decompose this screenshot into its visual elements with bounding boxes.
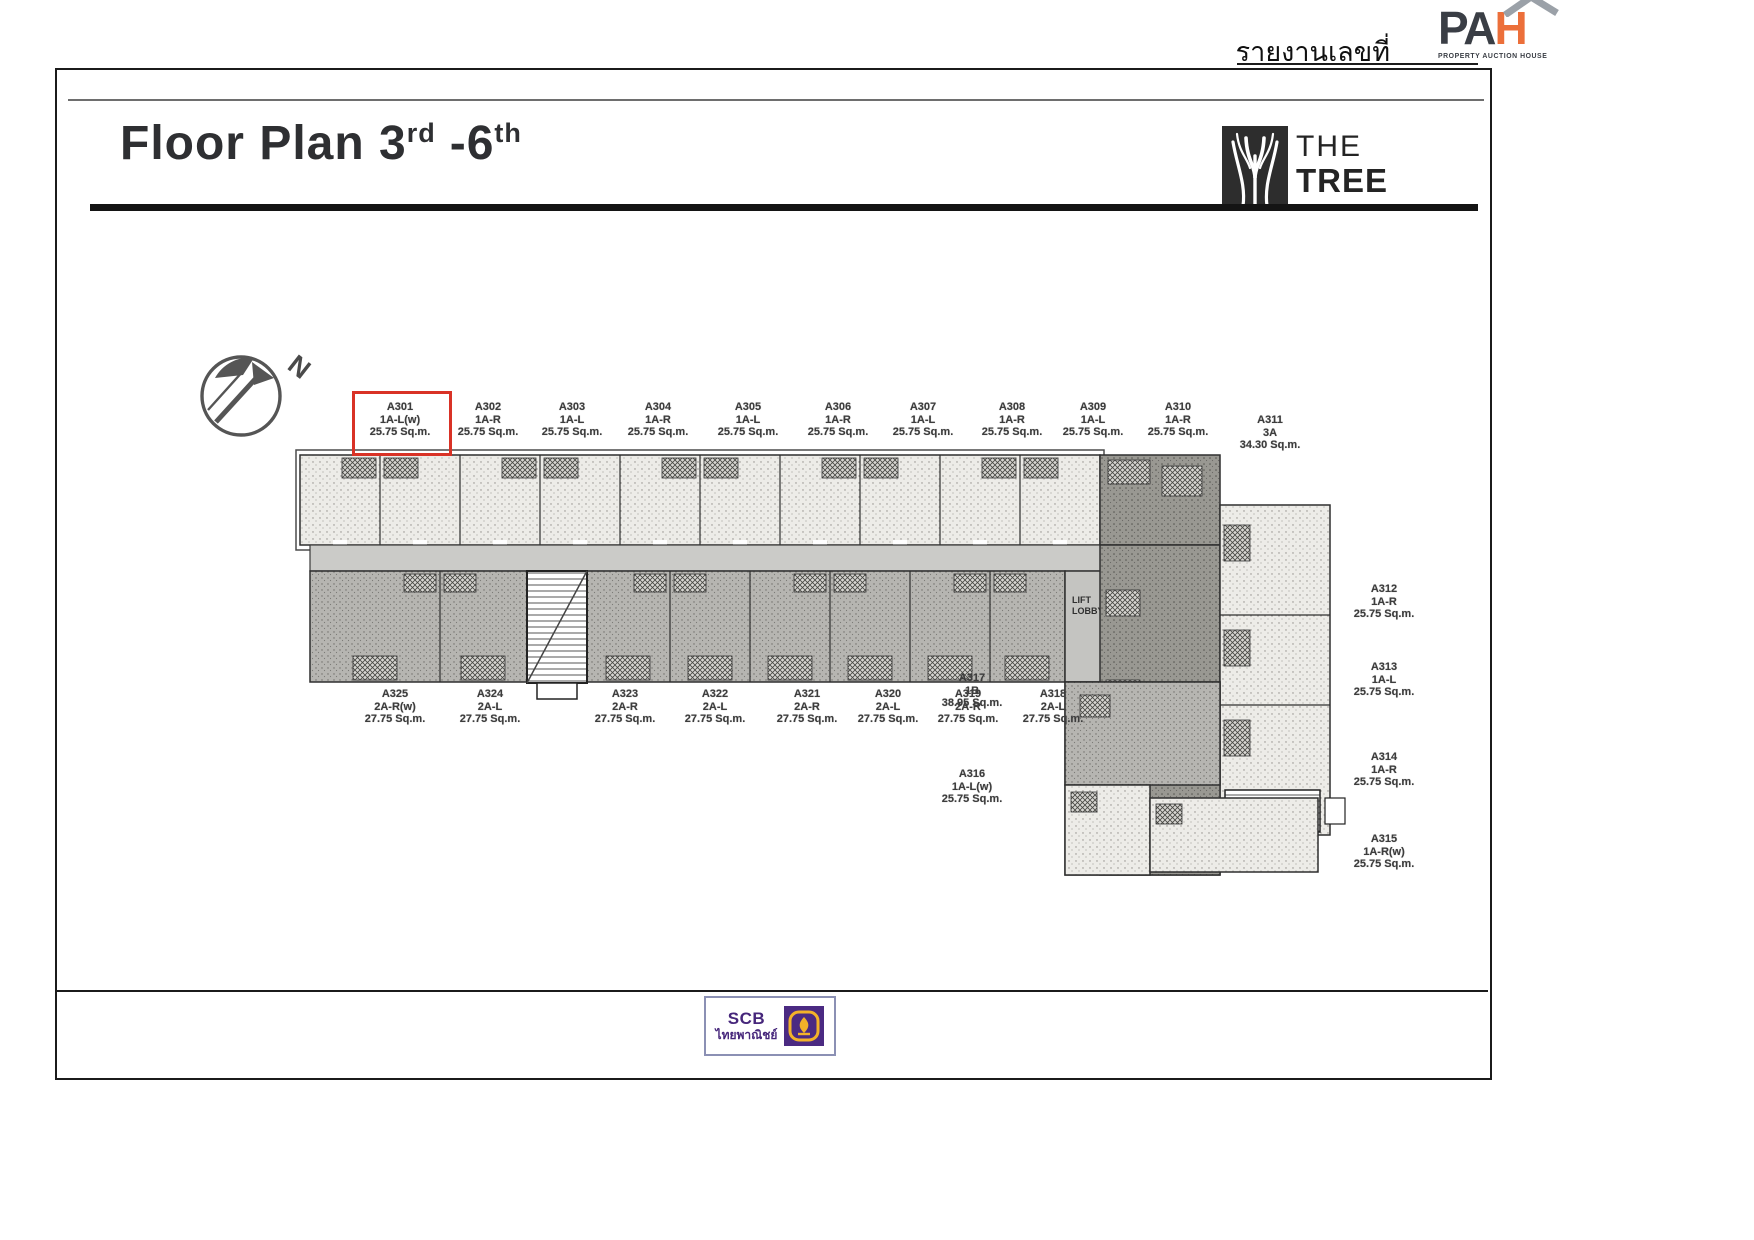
lift-lobby-label-line1: LIFT [1072, 595, 1091, 605]
lift-lobby-label-line2: LOBBY [1072, 606, 1104, 616]
report-number-label: รายงานเลขที่ [1150, 30, 1390, 73]
scb-abbr: SCB [716, 1010, 778, 1028]
page-title: Floor Plan 3rd-6th [120, 116, 522, 171]
highlight-box-unit-a301 [352, 391, 452, 456]
the-tree-logo-icon [1222, 126, 1288, 210]
title-superscript-rd: rd [407, 118, 436, 148]
pah-wordmark: PAH [1438, 4, 1556, 52]
tree-name-line1: THE [1296, 130, 1388, 163]
footer-divider-line [57, 990, 1488, 992]
title-text: Floor Plan 3 [120, 117, 407, 170]
scb-logo: SCB ไทยพาณิชย์ [704, 996, 836, 1056]
pah-logo: PAH PROPERTY AUCTION HOUSE [1438, 4, 1556, 60]
pah-roof-icon [1502, 0, 1560, 17]
title-thick-rule [90, 204, 1478, 211]
fire-stair-tower [527, 571, 587, 699]
scb-emblem-icon [784, 1006, 824, 1046]
report-number-underline [1237, 63, 1478, 65]
tree-name-line2: TREE [1296, 163, 1388, 199]
right-rooms-column [1220, 505, 1345, 835]
scb-wordmark: SCB ไทยพาณิชย์ [716, 1010, 778, 1043]
right-wing-top [1100, 455, 1220, 545]
title-superscript-th: th [494, 118, 521, 148]
pah-caption: PROPERTY AUCTION HOUSE [1438, 53, 1556, 60]
the-tree-wordmark: THE TREE [1296, 130, 1388, 199]
title-text-2: -6 [450, 117, 495, 170]
pah-letters-pa: PA [1438, 2, 1495, 54]
scb-thai-name: ไทยพาณิชย์ [716, 1028, 778, 1043]
corridor [310, 545, 1220, 571]
floor-plan-drawing: LIFT LOBBY [290, 390, 1490, 890]
frame-top-line [68, 99, 1484, 101]
upper-unit-row [296, 450, 1104, 550]
scanned-floor-plan-page: รายงานเลขที่ PAH PROPERTY AUCTION HOUSE … [0, 0, 1754, 1240]
lower-unit-row [310, 571, 1065, 699]
compass-north-letter: N [282, 349, 316, 385]
